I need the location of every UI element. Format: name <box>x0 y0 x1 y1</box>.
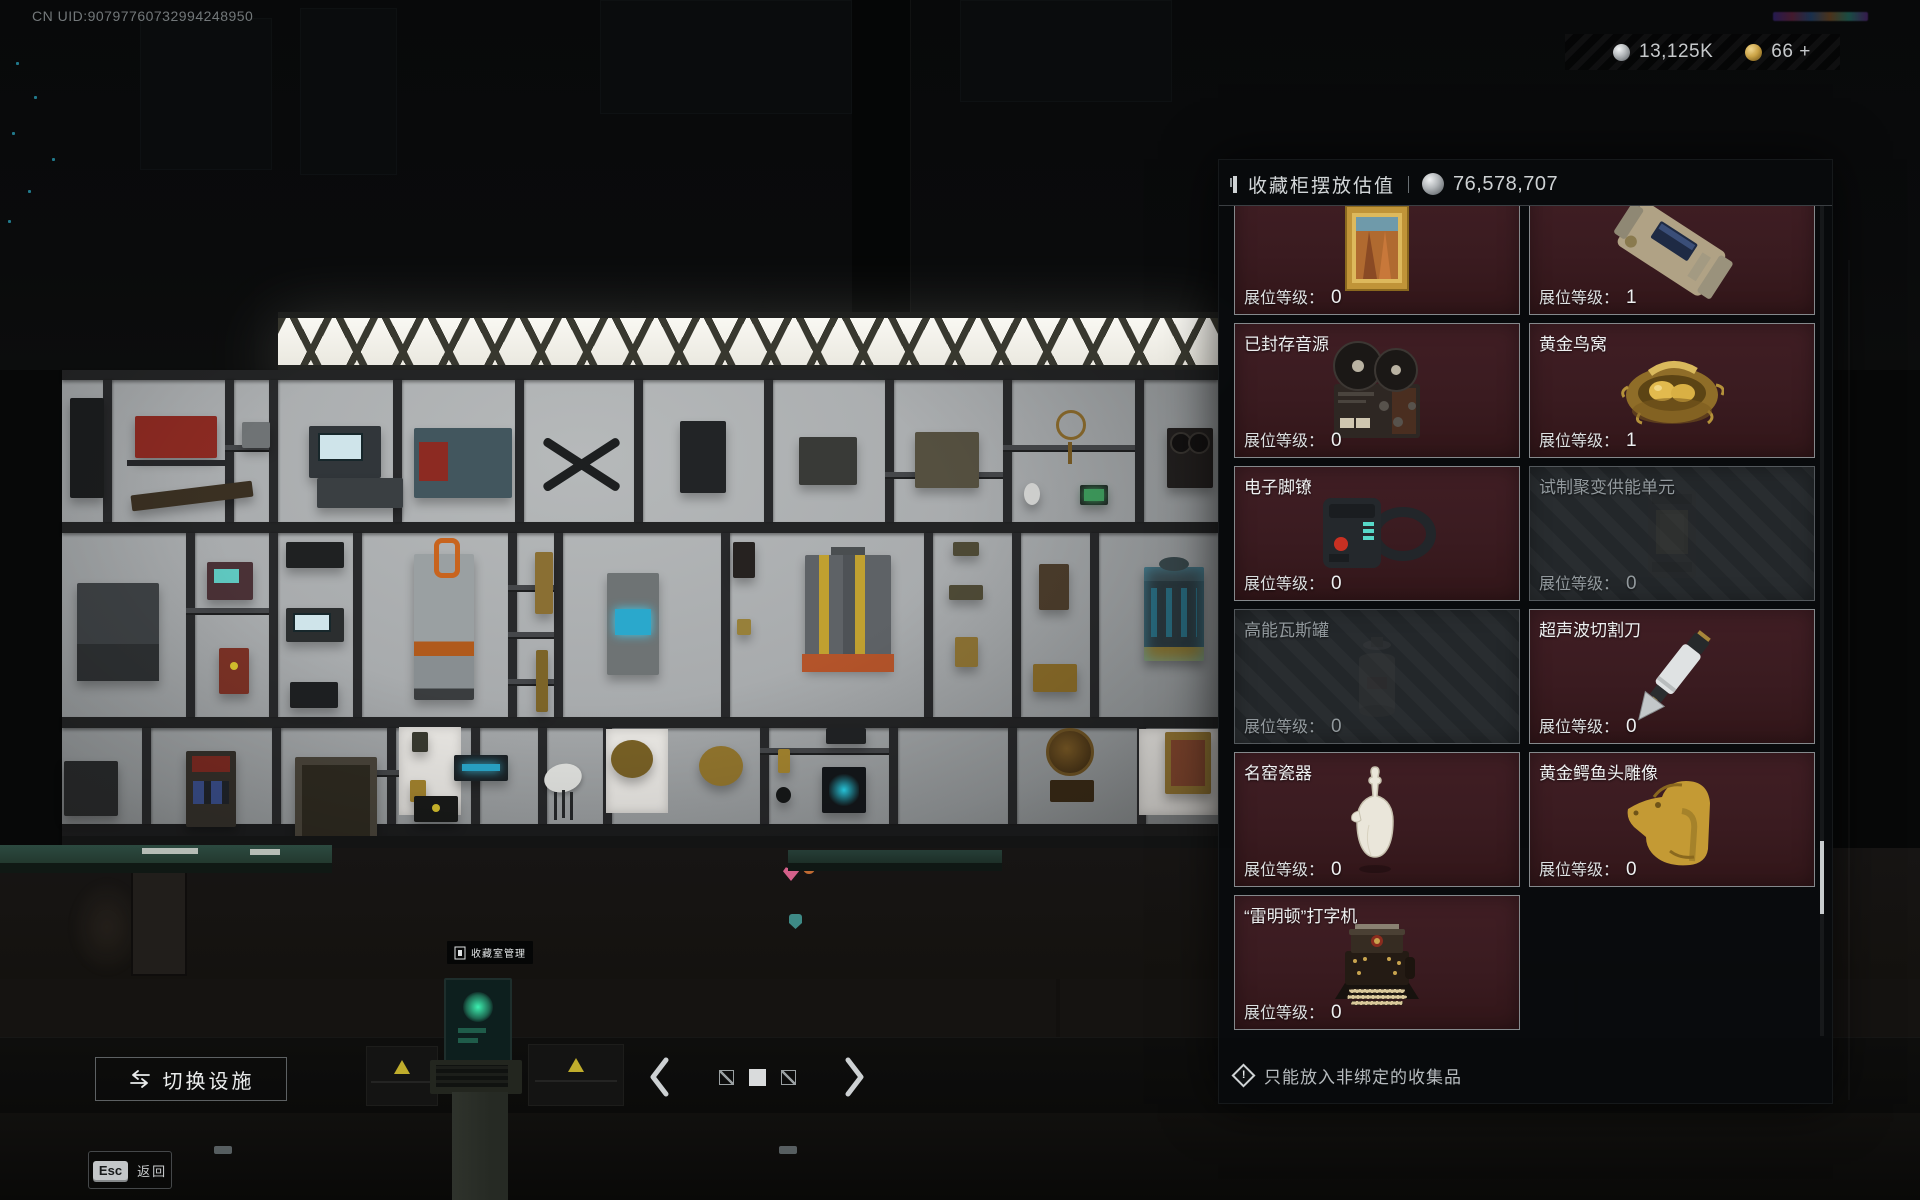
shelf-item <box>737 619 751 635</box>
shelf-item <box>680 421 726 493</box>
kiosk-stand <box>452 1092 508 1200</box>
notification-glitch <box>1773 12 1868 21</box>
server-rack <box>140 18 272 170</box>
shelf-item <box>290 682 338 708</box>
shelf-item <box>546 426 618 494</box>
shelf-post <box>924 533 933 717</box>
shelf-item <box>953 542 979 556</box>
shelf-item <box>309 426 381 478</box>
currency-bar: 13,125K 66 + <box>1565 34 1840 70</box>
display-level: 展位等级：0 <box>1244 856 1342 881</box>
shelf-post <box>1008 728 1017 824</box>
total-value: 76,578,707 <box>1453 173 1558 196</box>
display-level: 展位等级：0 <box>1244 570 1342 595</box>
paper-sheet <box>250 849 280 855</box>
shelf-item <box>611 740 653 778</box>
switch-facility-label: 切换设施 <box>163 1065 255 1094</box>
kiosk-screen-glow <box>463 992 493 1022</box>
shield-sticker <box>789 914 802 929</box>
panel-footer-note: ! 只能放入非绑定的收集品 <box>1235 1063 1462 1088</box>
sub-shelf <box>186 608 269 615</box>
paper-sheet <box>142 848 198 854</box>
kiosk-keyboard <box>430 1060 522 1094</box>
shelf-item <box>412 732 428 752</box>
shelf-post <box>1090 533 1099 717</box>
shelf-item <box>286 542 344 568</box>
display-shelf[interactable] <box>62 370 1218 848</box>
shelf-item <box>1039 564 1069 610</box>
collection-item-card[interactable]: 已封存音源展位等级：0 <box>1234 323 1520 458</box>
shelf-post <box>1012 533 1021 717</box>
swap-arrows-icon <box>128 1070 152 1088</box>
collection-item-card[interactable]: 展位等级：1 <box>1529 206 1815 315</box>
shelf-item <box>955 637 978 667</box>
shelf-item <box>1024 483 1040 505</box>
shelf-item <box>544 764 582 818</box>
page-indicator <box>719 1069 796 1086</box>
skylight-truss <box>278 312 1218 370</box>
shelf-post <box>186 533 195 717</box>
wall-seam <box>1848 260 1850 1100</box>
back-label: 返回 <box>137 1161 167 1180</box>
kiosk-tooltip: 收藏室管理 <box>447 941 533 964</box>
kiosk-label: 收藏室管理 <box>471 945 526 960</box>
collection-item-card[interactable]: 展位等级：0 <box>1234 206 1520 315</box>
scrollbar-thumb[interactable] <box>1820 841 1824 914</box>
shelf-item <box>317 478 403 508</box>
shelf-post <box>1135 380 1144 522</box>
panel-scrollbar[interactable] <box>1820 206 1824 1036</box>
shelf-item <box>799 437 857 485</box>
server-rack <box>300 8 397 175</box>
status-light <box>8 220 11 223</box>
sub-shelf <box>508 632 554 639</box>
item-name: 已封存音源 <box>1244 330 1510 355</box>
shelf-post <box>353 533 362 717</box>
shelf-item <box>949 585 983 600</box>
page-square-1[interactable] <box>749 1069 766 1086</box>
collection-item-card[interactable]: 名窑瓷器展位等级：0 <box>1234 752 1520 887</box>
shelf-item <box>607 573 659 675</box>
status-light <box>34 96 37 99</box>
status-light <box>16 62 19 65</box>
shelf-item <box>1033 664 1077 692</box>
green-table <box>0 845 332 863</box>
collection-item-card[interactable]: 高能瓦斯罐展位等级：0 <box>1234 609 1520 744</box>
item-name: 黄金鸟窝 <box>1539 330 1805 355</box>
display-level: 展位等级：0 <box>1244 284 1342 309</box>
page-square-2[interactable] <box>781 1070 796 1085</box>
green-table-front <box>788 863 1002 871</box>
shelf-post <box>634 380 643 522</box>
prev-page-chevron[interactable] <box>648 1057 672 1097</box>
green-table <box>788 850 1002 863</box>
shelf-item <box>1080 485 1108 505</box>
panel-title: 收藏柜摆放估值 <box>1248 171 1395 198</box>
server-rack <box>600 0 852 114</box>
floor-marker <box>214 1146 232 1154</box>
shelf-item <box>1044 728 1098 802</box>
shelf-item <box>1165 732 1211 794</box>
shelf-item <box>186 751 236 827</box>
floor-marker <box>779 1146 797 1154</box>
shelf-item <box>733 542 755 578</box>
item-name: “雷明顿”打字机 <box>1244 902 1510 927</box>
shelf-post <box>721 533 730 717</box>
shelf-item <box>414 796 458 822</box>
item-name: 名窑瓷器 <box>1244 759 1510 784</box>
shelf-post <box>142 728 151 824</box>
shelf-item <box>70 398 104 498</box>
warning-diamond-icon: ! <box>1231 1063 1255 1087</box>
shelf-item <box>778 749 790 773</box>
shelf-item <box>414 554 474 700</box>
display-level: 展位等级：0 <box>1539 713 1637 738</box>
shelf-frame-bar <box>62 522 1218 533</box>
shelf-post <box>889 728 898 824</box>
item-name: 黄金鳄鱼头雕像 <box>1539 759 1805 784</box>
status-light <box>52 158 55 161</box>
shelf-post <box>515 380 524 522</box>
shelf-post <box>269 533 278 717</box>
shelf-item <box>699 746 743 786</box>
shelf-item <box>915 432 979 488</box>
hazard-crate <box>366 1046 438 1106</box>
display-level: 展位等级：0 <box>1539 856 1637 881</box>
shelf-item <box>207 562 253 600</box>
shelf-item <box>1144 567 1204 661</box>
item-name: 试制聚变供能单元 <box>1539 473 1805 498</box>
shelf-item <box>414 428 512 498</box>
collection-value-panel: 收藏柜摆放估值 76,578,707 展位等级：0展位等级：1已封存音源展位等级… <box>1218 159 1833 1104</box>
silver-coin-icon <box>1422 173 1444 195</box>
header-accent <box>1233 176 1237 193</box>
shelf-item <box>454 755 508 781</box>
shelf-item <box>826 728 866 744</box>
gold-currency-value: 66 + <box>1771 41 1811 63</box>
collection-item-card[interactable]: 试制聚变供能单元展位等级：0 <box>1529 466 1815 601</box>
display-level: 展位等级：0 <box>1539 570 1637 595</box>
shelf-item <box>242 422 270 448</box>
shelf-item <box>77 583 159 681</box>
server-rack <box>960 0 1172 102</box>
floor-lower <box>0 1113 1920 1200</box>
display-level: 展位等级：0 <box>1244 999 1342 1024</box>
back-hint[interactable]: Esc 返回 <box>88 1151 172 1189</box>
screen: 收藏室管理 CN UID:90797760732994248950 13,125… <box>0 0 1920 1200</box>
shelf-item <box>1167 428 1213 488</box>
collection-item-card[interactable]: 黄金鳄鱼头雕像展位等级：0 <box>1529 752 1815 887</box>
header-separator <box>1408 176 1409 193</box>
shelf-item <box>1055 410 1085 464</box>
shelf-item <box>286 608 344 642</box>
shelf-frame-bar <box>62 370 1218 380</box>
shelf-item <box>130 481 253 512</box>
hazard-crate <box>528 1044 624 1106</box>
cabinet-icon <box>454 946 466 960</box>
display-level: 展位等级：1 <box>1539 284 1637 309</box>
shelf-post <box>764 380 773 522</box>
item-name: 电子脚镣 <box>1244 473 1510 498</box>
shelf-post <box>272 728 281 824</box>
status-light <box>28 190 31 193</box>
collection-item-card[interactable]: 电子脚镣展位等级：0 <box>1234 466 1520 601</box>
collection-item-card[interactable]: 黄金鸟窝展位等级：1 <box>1529 323 1815 458</box>
item-name: 高能瓦斯罐 <box>1244 616 1510 641</box>
collection-item-card[interactable]: “雷明顿”打字机展位等级：0 <box>1234 895 1520 1030</box>
display-level: 展位等级：0 <box>1244 427 1342 452</box>
player-uid: CN UID:90797760732994248950 <box>32 8 253 24</box>
shelf-post <box>885 380 894 522</box>
shelf-post <box>554 533 563 717</box>
silver-currency-value: 13,125K <box>1639 41 1713 63</box>
display-level: 展位等级：0 <box>1244 713 1342 738</box>
kiosk-screen-bar <box>458 1028 486 1033</box>
status-light <box>12 132 15 135</box>
cabinet-pager <box>648 1056 866 1098</box>
item-name: 超声波切割刀 <box>1539 616 1805 641</box>
item-card-list: 展位等级：0展位等级：1已封存音源展位等级：0黄金鸟窝展位等级：1电子脚镣展位等… <box>1234 206 1815 1040</box>
kiosk-terminal[interactable] <box>444 978 512 1062</box>
gold-coin-icon <box>1745 44 1762 61</box>
shelf-item <box>776 787 791 803</box>
esc-keycap: Esc <box>93 1161 128 1180</box>
silver-coin-icon <box>1613 44 1630 61</box>
shelf-item <box>64 761 118 816</box>
display-level: 展位等级：1 <box>1539 427 1637 452</box>
shelf-post <box>103 380 112 522</box>
panel-header: 收藏柜摆放估值 76,578,707 <box>1233 171 1816 197</box>
footer-note-text: 只能放入非绑定的收集品 <box>1264 1063 1462 1088</box>
skylight-panel <box>278 312 1218 370</box>
shelf-frame-bar <box>62 717 1218 728</box>
shelf-item <box>536 650 548 712</box>
shelf-item <box>219 648 249 694</box>
shelf-item <box>822 767 866 813</box>
skylight-frame-top <box>278 312 1218 318</box>
green-table-front <box>0 863 332 873</box>
collection-item-card[interactable]: 超声波切割刀展位等级：0 <box>1529 609 1815 744</box>
kiosk-screen-bar <box>458 1038 478 1043</box>
shelf-post <box>269 380 278 522</box>
page-square-0[interactable] <box>719 1070 734 1085</box>
shelf-item <box>805 555 891 668</box>
shelf-post <box>508 533 517 717</box>
shelf-item <box>535 552 553 614</box>
shelf-post <box>760 728 769 824</box>
switch-facility-button[interactable]: 切换设施 <box>95 1057 287 1101</box>
shelf-item <box>135 416 217 458</box>
next-page-chevron[interactable] <box>842 1057 866 1097</box>
